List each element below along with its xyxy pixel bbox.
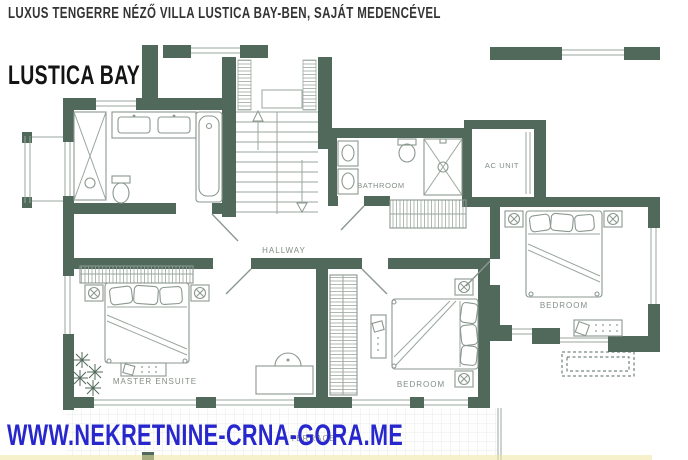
bench bbox=[371, 315, 386, 358]
hall-wardrobe bbox=[390, 200, 466, 228]
bedroom-middle: BEDROOM bbox=[330, 275, 478, 395]
bedroom-middle-label: BEDROOM bbox=[397, 380, 445, 389]
dressing-table bbox=[256, 353, 313, 394]
hallway-label: HALLWAY bbox=[262, 246, 306, 255]
toilet bbox=[398, 139, 416, 162]
master-ensuite-label: MASTER ENSUITE bbox=[113, 377, 197, 386]
walls bbox=[22, 45, 660, 460]
plant bbox=[72, 352, 103, 396]
floorplan-drawing: BATHROOM AC UNIT HALLWAY bbox=[0, 0, 688, 460]
bathroom-label: BATHROOM bbox=[357, 181, 405, 190]
bedroom-right: BEDROOM bbox=[505, 211, 622, 336]
bathroom-fixtures: BATHROOM bbox=[338, 139, 462, 195]
master-ensuite: MASTER ENSUITE bbox=[72, 266, 313, 396]
listing-floorplan-image: LUXUS TENGERRE NÉZŐ VILLA LUSTICA BAY-BE… bbox=[0, 0, 688, 460]
toilet bbox=[112, 176, 130, 203]
bathtub bbox=[196, 112, 222, 202]
website-link[interactable]: WWW.NEKRETNINE-CRNA-GORA.ME bbox=[7, 419, 403, 453]
ac-unit-label: AC UNIT bbox=[485, 161, 519, 170]
bedroom-right-label: BEDROOM bbox=[540, 301, 588, 310]
bench bbox=[121, 363, 166, 376]
bed bbox=[526, 211, 602, 297]
bed bbox=[392, 299, 478, 369]
balcony-outline bbox=[562, 352, 634, 376]
double-sink bbox=[112, 112, 196, 138]
hallway-area: HALLWAY bbox=[262, 246, 306, 255]
ac-unit-area: AC UNIT bbox=[485, 161, 519, 170]
accent-strip bbox=[0, 455, 652, 460]
bed bbox=[105, 283, 189, 363]
shower bbox=[74, 112, 106, 200]
bench bbox=[574, 320, 622, 336]
shower bbox=[424, 139, 462, 195]
master-bathroom-fixtures bbox=[74, 112, 222, 203]
sink bbox=[338, 141, 358, 194]
staircase bbox=[236, 60, 318, 214]
